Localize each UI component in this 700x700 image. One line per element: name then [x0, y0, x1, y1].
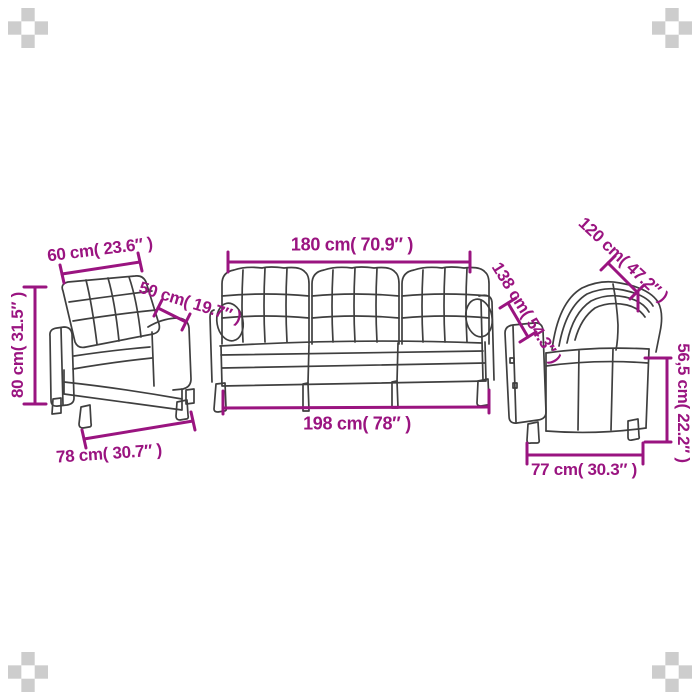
armchair-height-label: 80 cm( 31.5″ ) — [8, 292, 28, 398]
sofa3-width-bottom-dimension-line — [223, 390, 489, 414]
sofa2-height-label: 56,5 cm( 22.2″ ) — [673, 343, 693, 463]
sofa3-width-bottom-label: 198 cm( 78″ ) — [303, 414, 411, 435]
furniture-line-art — [0, 0, 700, 700]
three-seater-sofa-drawing — [210, 267, 495, 412]
sofa2-width-bottom-label: 77 cm( 30.3″ ) — [531, 460, 637, 480]
sofa3-width-top-label: 180 cm( 70.9″ ) — [291, 235, 413, 256]
product-dimension-diagram: 60 cm( 23.6″ ) 50 cm( 19.7″ ) 80 cm( 31.… — [0, 0, 700, 700]
